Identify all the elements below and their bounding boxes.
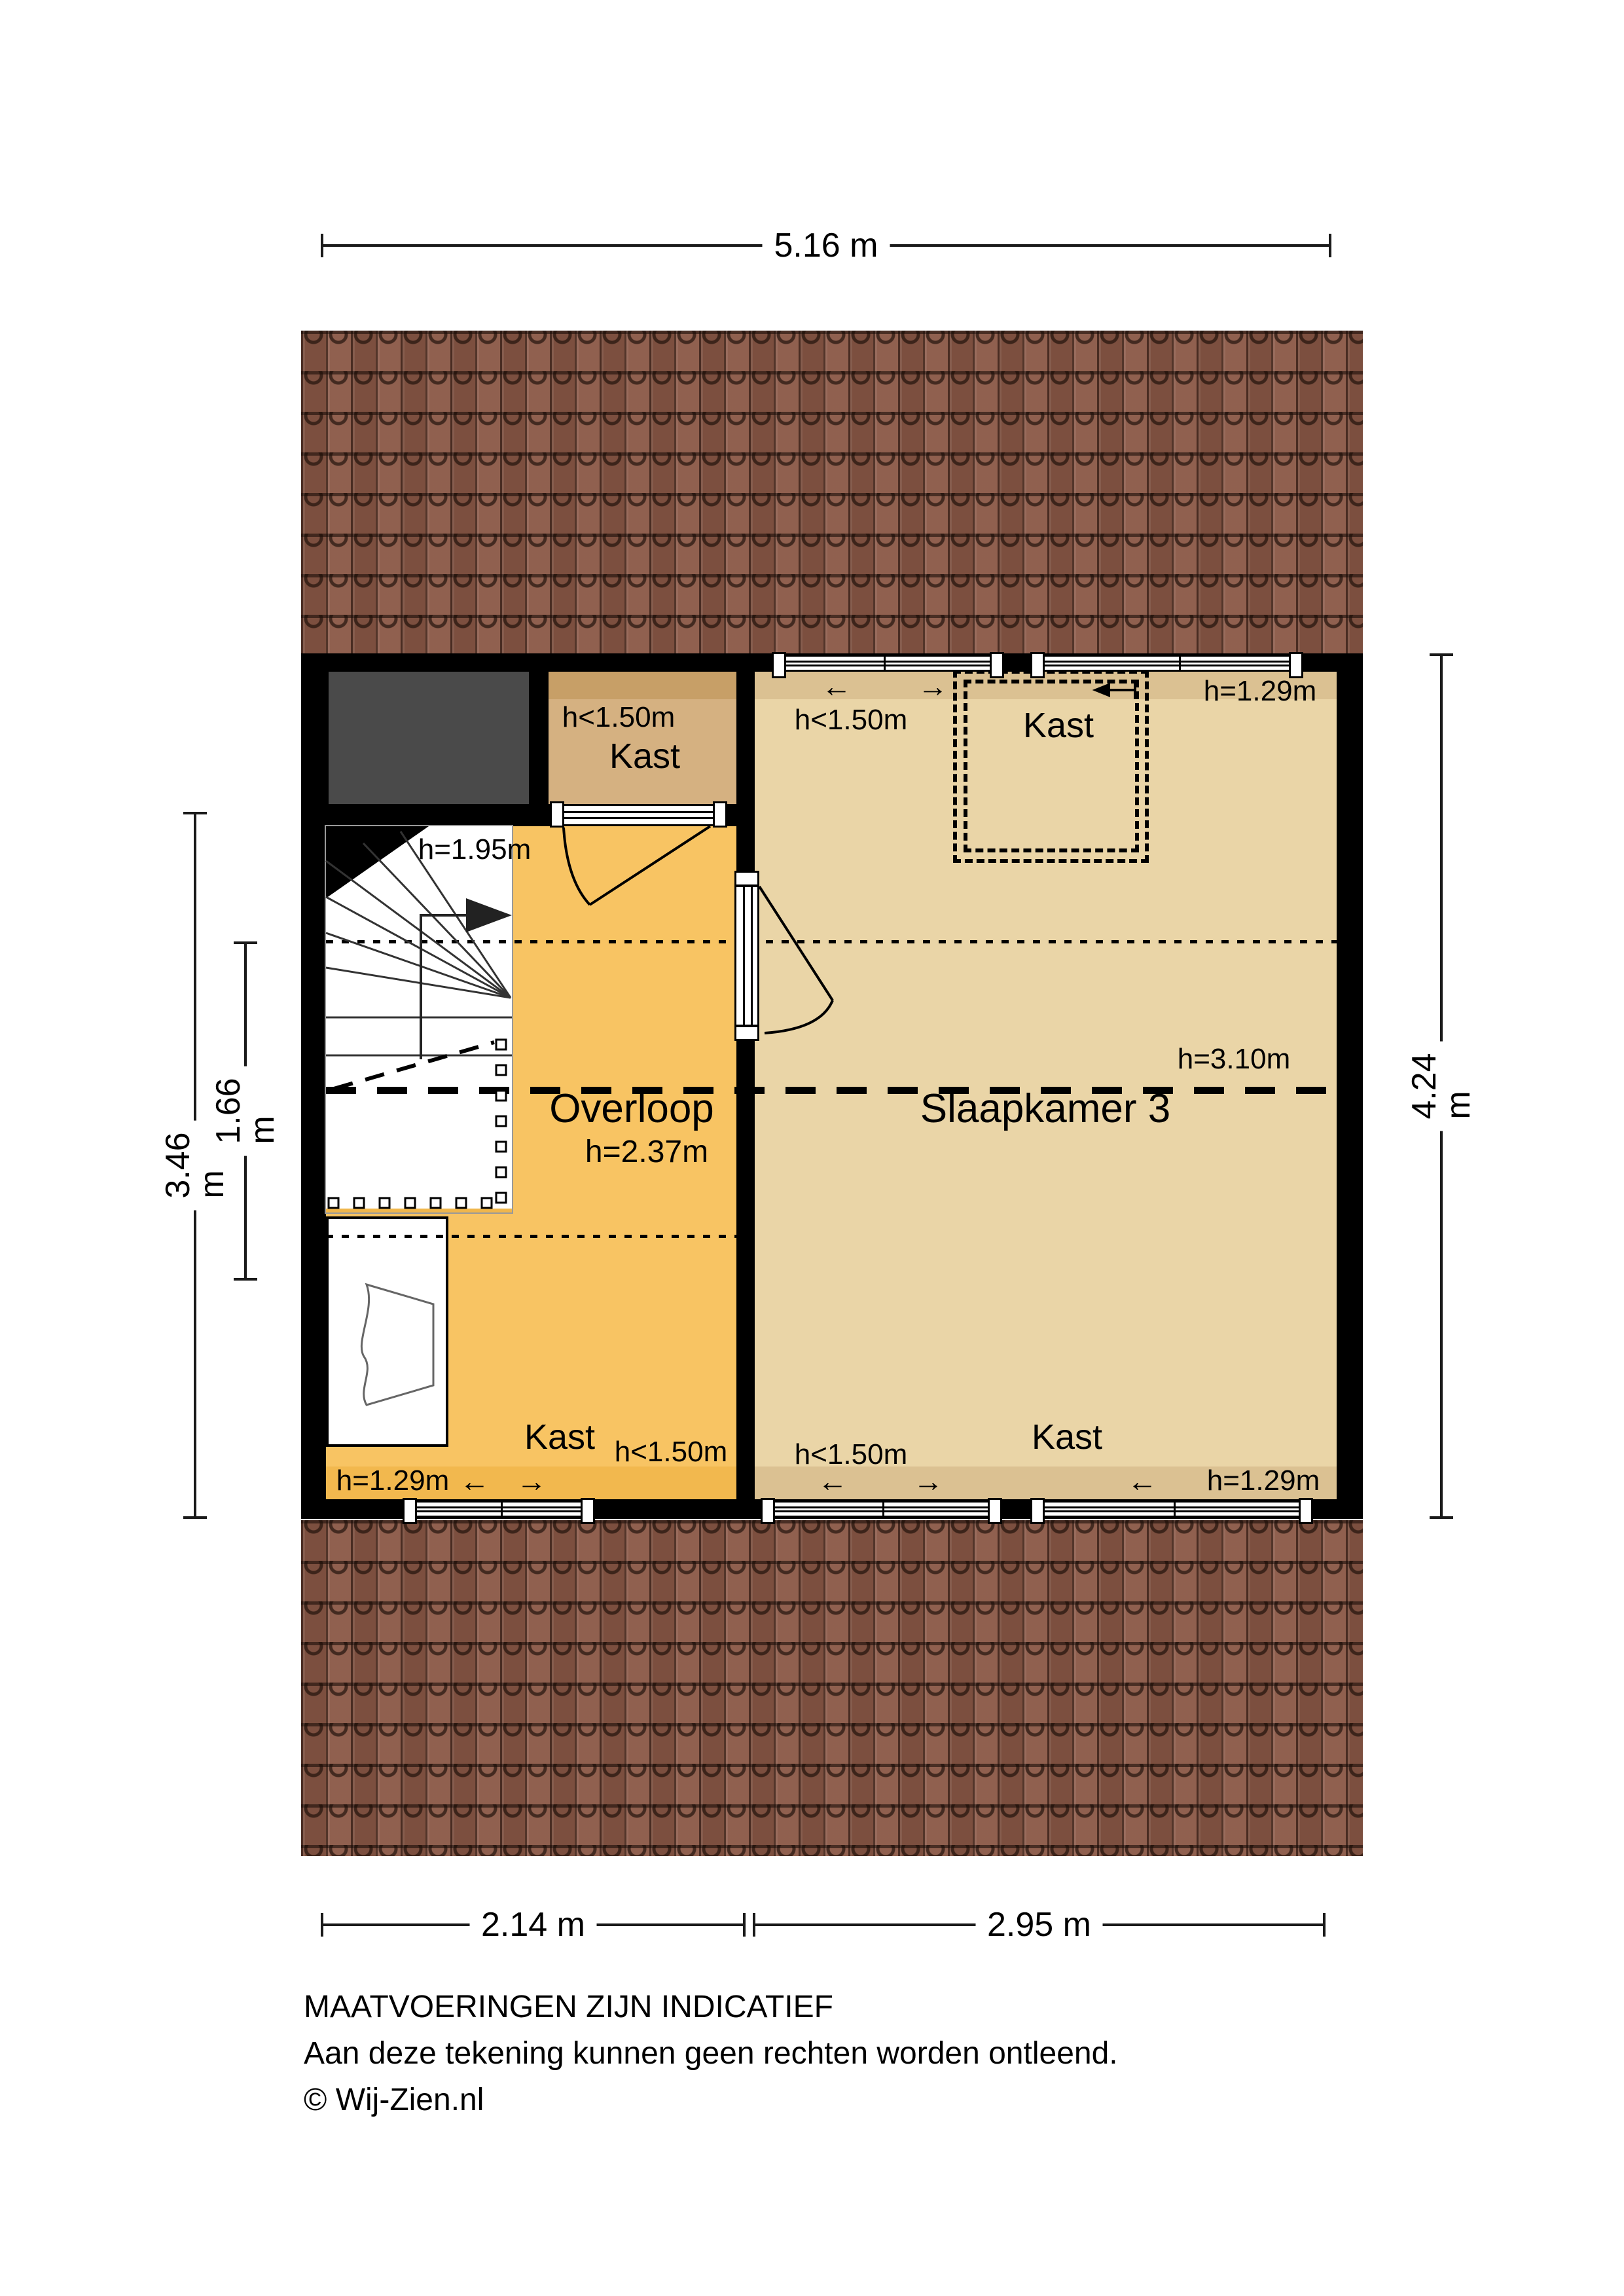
slaapkamer-bottom-edge-height-note: h=1.29m	[1207, 1467, 1320, 1495]
stair-corner-wall	[326, 826, 429, 898]
window-jamb	[713, 801, 727, 828]
dimension-tick	[321, 1913, 323, 1937]
dormer-fixture-outline	[361, 1285, 433, 1405]
overloop-kast-height-note: h<1.50m	[615, 1438, 727, 1467]
dimension-bottom-right-label: 2.95 m	[975, 1908, 1103, 1942]
dimension-tick	[183, 1516, 207, 1519]
window-jamb	[1030, 1498, 1045, 1524]
window-jamb	[581, 1498, 595, 1524]
slide-arrow-right-icon: →	[913, 1466, 943, 1496]
slaapkamer-bottom-kast-label: Kast	[1032, 1419, 1102, 1455]
slaapkamer-bottom-zone-note: h<1.50m	[795, 1440, 907, 1469]
window-jamb	[403, 1498, 417, 1524]
footer-copyright: © Wij-Zien.nl	[304, 2077, 1118, 2123]
floorplan-page: 5.16 m	[0, 0, 1624, 2296]
dimension-bottom-left: 2.14 m	[321, 1923, 746, 1926]
overloop-kast-label: Kast	[524, 1419, 595, 1455]
slide-arrow-right-icon: →	[918, 671, 948, 701]
overloop-edge-height-note: h=1.29m	[336, 1467, 449, 1495]
dimension-left-inner-label: 1.66 m	[211, 1066, 280, 1156]
dimension-right-label: 4.24 m	[1407, 1041, 1475, 1131]
dimension-left-outer: 3.46 m	[194, 812, 196, 1519]
door-jamb	[734, 871, 759, 886]
slide-arrow-left-icon: ←	[818, 1466, 848, 1496]
door-leaf	[734, 885, 759, 1027]
slaapkamer-top-zone-note: h<1.50m	[795, 706, 907, 735]
door-jamb	[734, 1025, 759, 1041]
kast-slide-arrow	[1096, 681, 1135, 699]
window-jamb	[988, 1498, 1002, 1524]
window-jamb	[772, 652, 786, 678]
slaapkamer-top-edge-height-note: h=1.29m	[1204, 677, 1316, 706]
stairs-height-note: h=1.95m	[418, 835, 531, 864]
footer-line1: MAATVOERINGEN ZIJN INDICATIEF	[304, 1984, 1118, 2030]
slaapkamer-mid-height-note: h=3.10m	[1178, 1045, 1290, 1074]
overloop-name: Overloop	[549, 1089, 714, 1129]
stair-balustrade	[329, 1040, 506, 1208]
slaapkamer-name: Slaapkamer 3	[920, 1089, 1171, 1129]
dimension-tick	[234, 1278, 257, 1281]
door-swing-slaapkamer	[759, 886, 833, 1033]
overloop-height-note: h=2.37m	[585, 1137, 708, 1168]
dimension-left-inner: 1.66 m	[244, 941, 247, 1281]
slide-arrow-left-icon: ←	[1127, 1466, 1157, 1496]
footer-disclaimer: MAATVOERINGEN ZIJN INDICATIEF Aan deze t…	[304, 1984, 1118, 2123]
slide-arrow-left-icon: ←	[821, 671, 852, 701]
dimension-tick	[183, 812, 207, 814]
dimension-bottom-left-label: 2.14 m	[469, 1908, 597, 1942]
dimension-tick	[753, 1913, 755, 1937]
footer-line2: Aan deze tekening kunnen geen rechten wo…	[304, 2030, 1118, 2077]
dimension-right: 4.24 m	[1440, 653, 1443, 1519]
window-jamb	[761, 1498, 775, 1524]
stair-break-dashed-line	[334, 1042, 494, 1089]
window-jamb	[990, 652, 1004, 678]
dimension-tick	[234, 941, 257, 944]
dimension-tick	[743, 1913, 746, 1937]
dimension-bottom-right: 2.95 m	[753, 1923, 1326, 1926]
slide-arrow-right-icon: →	[516, 1466, 547, 1496]
slide-arrow-left-icon: ←	[460, 1466, 490, 1496]
kast-dashed-label: Kast	[1023, 708, 1094, 743]
dimension-tick	[1430, 653, 1453, 656]
window-jamb	[1299, 1498, 1313, 1524]
dimension-tick	[1430, 1516, 1453, 1519]
window-jamb	[1289, 652, 1303, 678]
dimension-tick	[1323, 1913, 1326, 1937]
kast-topleft-name: Kast	[609, 738, 680, 774]
window-jamb	[1030, 652, 1045, 678]
kast-topleft-height-note: h<1.50m	[562, 703, 675, 732]
window-jamb	[550, 801, 564, 828]
door-swing-kast	[564, 826, 710, 905]
